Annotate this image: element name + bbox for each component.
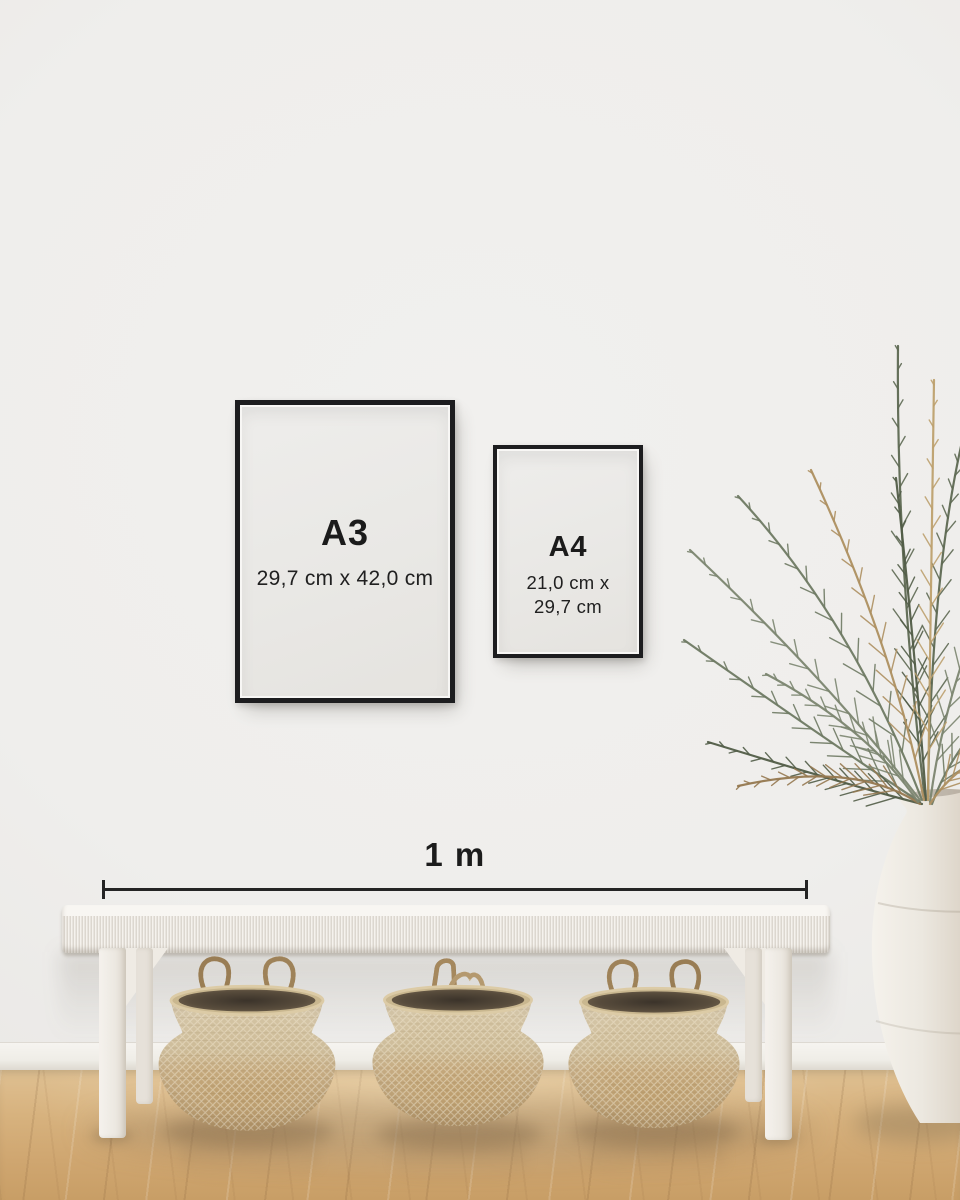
vase-body	[872, 789, 960, 1123]
frond-leaflet	[908, 577, 915, 591]
frond-leaflet	[942, 744, 944, 775]
a3-paper: A3 29,7 cm x 42,0 cm	[240, 405, 450, 698]
frond-leaflet	[923, 534, 932, 549]
floor-vase	[862, 785, 960, 1135]
frond-leaflet	[858, 638, 859, 662]
seagrass-basket	[562, 953, 746, 1143]
frond-leaflet	[954, 647, 959, 669]
bench-leg	[136, 948, 153, 1104]
scale-tick-left	[102, 880, 105, 899]
scale-label: 1 m	[102, 836, 808, 874]
a3-frame: A3 29,7 cm x 42,0 cm	[235, 400, 455, 703]
frond-leaflet	[762, 776, 771, 780]
frond-leaflet	[873, 665, 875, 692]
frond-leaflet	[917, 640, 930, 662]
frond-leaflet	[820, 483, 821, 490]
frond-leaflet	[888, 692, 891, 722]
frond-leaflet	[847, 540, 849, 552]
room-scene: 1 m A3 29,7 cm x 42,0 cm A4 21,0 cm x 29…	[0, 0, 960, 1200]
frond-leaflet	[859, 568, 862, 583]
scale-tick-right	[805, 880, 808, 899]
frond-leaflet	[752, 696, 766, 697]
frond-leaflet	[891, 649, 897, 672]
seagrass-basket	[152, 953, 342, 1143]
frond-leaflet	[942, 505, 948, 518]
bench-seat	[62, 905, 830, 953]
frond-leaflet	[824, 589, 825, 607]
a3-size-dimensions: 29,7 cm x 42,0 cm	[240, 567, 450, 591]
seagrass-basket	[366, 949, 550, 1143]
frond-leaflet	[730, 679, 741, 680]
frond-leaflet	[881, 623, 886, 644]
frond-leaflet	[900, 474, 908, 487]
frond-leaflet	[896, 478, 926, 800]
basket-reflection	[392, 1138, 528, 1182]
frond-leaflet	[792, 728, 812, 729]
frond-leaflet	[902, 511, 911, 527]
palm-plant	[596, 318, 960, 818]
frond-leaflet	[930, 623, 943, 643]
frond-leaflet	[955, 454, 958, 462]
bench-leg	[99, 948, 126, 1138]
frond-leaflet	[948, 479, 952, 489]
frond-leaflet	[937, 533, 944, 548]
frond-leaflet	[806, 566, 807, 581]
frond-leaflet	[866, 797, 896, 806]
a3-size-label: A3	[240, 515, 450, 551]
frond-leaflet	[706, 661, 714, 662]
frond-leaflet	[932, 553, 942, 568]
basket-body	[159, 986, 336, 1130]
frond-leaflet	[932, 516, 940, 529]
frond-leaflet	[871, 595, 875, 613]
basket-body	[568, 988, 739, 1128]
frond-leaflet	[828, 756, 854, 757]
frond-leaflet	[706, 743, 711, 744]
scale-line	[102, 888, 808, 891]
bench-leg	[765, 948, 792, 1140]
frond-leaflet	[911, 605, 919, 621]
frond-leaflet	[729, 751, 737, 753]
bench-leg	[745, 948, 762, 1102]
frond-leaflet	[919, 606, 931, 625]
frond-leaflet	[805, 705, 819, 706]
frond-leaflet	[773, 713, 790, 714]
basket-body	[372, 986, 543, 1126]
frond-leaflet	[811, 742, 834, 743]
scale-bar: 1 m	[102, 836, 808, 896]
frond-leaflet	[922, 625, 934, 648]
frond-leaflet	[945, 670, 952, 695]
frond-leaflet	[772, 765, 786, 769]
frond-leaflet	[751, 758, 762, 761]
frond-leaflet	[738, 496, 922, 800]
frond-leaflet	[834, 512, 835, 521]
frond-leaflet	[779, 772, 790, 778]
frond-leaflet	[921, 570, 931, 587]
